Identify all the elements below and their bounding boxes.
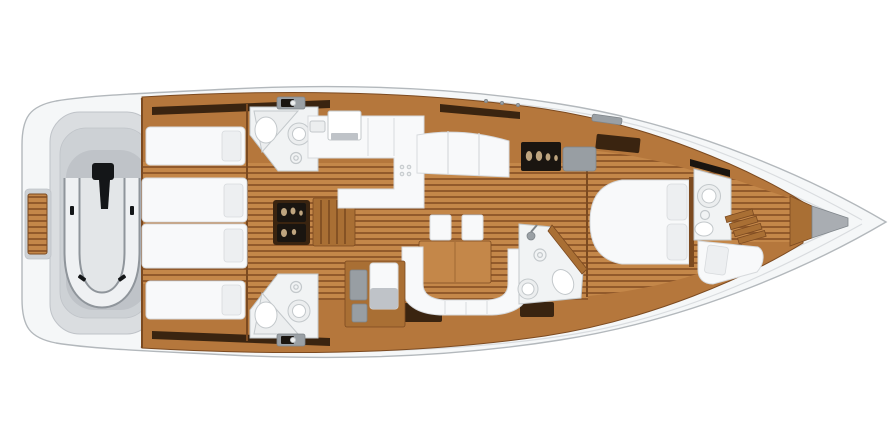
sink-bowl [293,305,306,318]
winch [291,101,296,106]
deck-dot [484,99,487,102]
deck-dot [516,103,519,106]
dinghy-handle-1 [70,206,74,215]
pillow [222,285,241,315]
dinghy [70,163,134,300]
glass-glyph [546,153,551,161]
headboard [689,177,694,267]
glass-glyph [526,151,532,161]
pillow [667,184,687,220]
platform-teak [28,194,47,254]
shower-head [527,232,535,240]
pillow [224,184,243,217]
settee-cushions [417,132,509,177]
sink-bowl [522,283,534,295]
saloon-settee [417,131,509,177]
toilet [695,222,713,236]
toilet [255,117,277,143]
bar-cabinet [521,142,561,171]
pillow [222,131,241,161]
nav-station [345,261,405,327]
ensuite-head [690,159,731,240]
glass-glyph [536,151,542,161]
owners-cabin [590,177,694,267]
pillow [224,229,243,262]
dinghy-handle-2 [130,206,134,215]
engine-glyph [281,229,287,237]
glass-glyph [554,155,558,161]
day-head-dark-panel [520,302,554,317]
deck-dot [500,101,503,104]
burner [400,172,404,176]
burner [400,165,404,169]
nav-gray-panel [350,270,367,300]
nav-gray-panel [352,304,367,322]
engine-glyph [299,210,303,215]
chart-panel [563,147,596,171]
yacht-floor-plan [0,0,890,446]
floor-plan-stage [0,0,890,446]
dining-stool[interactable] [462,215,483,240]
dining-stool[interactable] [430,215,451,240]
sink-bowl [293,128,306,141]
pillow [704,245,729,276]
winch [291,338,296,343]
engine-glyph [292,229,296,235]
burner [407,165,411,169]
outboard-motor-head [92,163,114,180]
sink-bowl [702,189,716,203]
chaise-cushion [370,288,398,309]
toilet [255,302,277,328]
pillow [667,224,687,260]
engine-glyph [281,208,287,216]
burner [407,172,411,176]
swim-platform [25,189,51,259]
galley-sink [310,121,325,132]
engine-glyph [291,208,296,215]
engine-compartment [273,200,310,245]
stove-hood [331,133,358,140]
